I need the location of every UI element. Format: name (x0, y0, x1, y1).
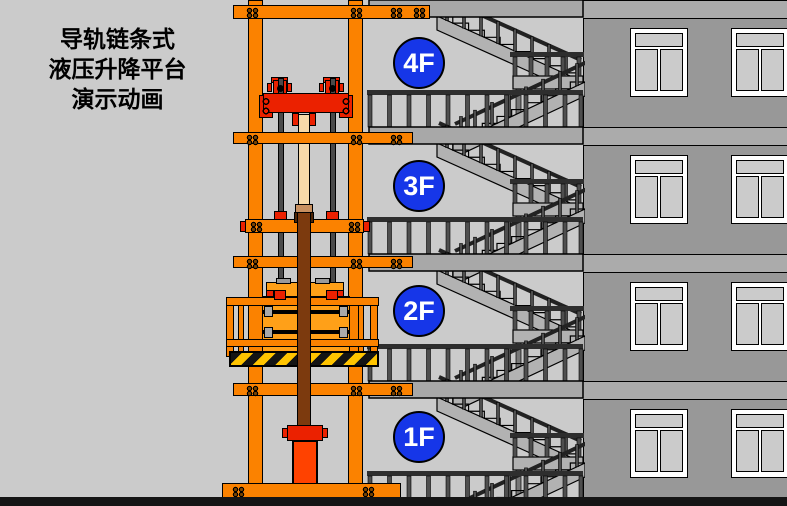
window-transom (736, 287, 784, 301)
lift-beam (233, 132, 413, 144)
bolt-group (250, 221, 263, 233)
bolt-group (246, 134, 259, 146)
bolt-group (413, 7, 426, 19)
bolt-group (390, 258, 403, 270)
floor-badge-label: 1F (403, 422, 435, 453)
rod-bracket (309, 113, 316, 126)
bolt-group (350, 385, 363, 397)
animation-stage: 4F 3F 2F 1F 导轨链条式 液压升降平台 演示动画 (0, 0, 787, 506)
cage-post (226, 297, 234, 357)
cage-post (370, 297, 378, 357)
floor-badge-1f: 1F (393, 411, 445, 463)
window-pane (761, 303, 784, 345)
sprocket-lug (319, 83, 324, 92)
bolt-group (246, 385, 259, 397)
crate-patch (264, 306, 273, 317)
bolt-group (390, 134, 403, 146)
rod-bracket (292, 113, 299, 126)
sprocket-lug (339, 83, 344, 92)
window-pane (635, 430, 658, 472)
lift-beam (233, 256, 413, 268)
hydraulic-rod (298, 114, 310, 214)
bolt-group (246, 7, 259, 19)
bolt-group (350, 258, 363, 270)
window-pane (660, 176, 683, 218)
window-pane (635, 176, 658, 218)
floor-badge-label: 4F (403, 48, 435, 79)
floor-band (583, 254, 787, 273)
window-pane (736, 176, 759, 218)
floor-badge-2f: 2F (393, 285, 445, 337)
cargo-lid-tab (276, 278, 291, 284)
title-line: 液压升降平台 (10, 54, 225, 84)
floor-band (583, 127, 787, 146)
window-pane (761, 49, 784, 91)
window-pane (736, 49, 759, 91)
hydraulic-cylinder (292, 440, 318, 485)
window-pane (660, 430, 683, 472)
window-pane (761, 430, 784, 472)
floor-badge-label: 2F (403, 296, 435, 327)
chain-anchor (274, 290, 286, 300)
sprocket-axle (329, 85, 336, 92)
window-pane (635, 303, 658, 345)
window (630, 155, 688, 224)
crate-patch (339, 306, 348, 317)
window (731, 28, 787, 97)
bolt-group (350, 7, 363, 19)
plate-bolts (341, 97, 351, 116)
floor-band (583, 381, 787, 400)
floor-badge-label: 3F (403, 171, 435, 202)
page-title: 导轨链条式 液压升降平台 演示动画 (10, 24, 225, 114)
title-line: 导轨链条式 (10, 24, 225, 54)
sprocket-lug (267, 83, 272, 92)
window-transom (736, 160, 784, 174)
cargo-lid-tab (315, 278, 330, 284)
lift-beam (233, 383, 413, 396)
window (630, 282, 688, 351)
bolt-group (390, 7, 403, 19)
crate-patch (264, 327, 273, 338)
window-transom (635, 287, 683, 301)
sprocket-axle (277, 85, 284, 92)
window-pane (736, 430, 759, 472)
cylinder-cap (287, 425, 323, 441)
window (731, 282, 787, 351)
window-pane (660, 303, 683, 345)
bolt-group (390, 385, 403, 397)
floor-badge-3f: 3F (393, 160, 445, 212)
window-pane (660, 49, 683, 91)
lift-mast (297, 212, 311, 428)
chain-anchor (326, 290, 338, 300)
window (731, 409, 787, 478)
carriage-beam (263, 93, 349, 113)
lift-column-right (348, 0, 363, 484)
bolt-group (246, 258, 259, 270)
window-pane (761, 176, 784, 218)
ground-bar (0, 497, 787, 506)
title-line: 演示动画 (10, 84, 225, 114)
lift-column-left (248, 0, 263, 484)
window (630, 409, 688, 478)
window-transom (736, 33, 784, 47)
bolt-group (350, 134, 363, 146)
window-transom (635, 33, 683, 47)
plate-bolts (261, 97, 271, 116)
floor-band (583, 0, 787, 19)
window (731, 155, 787, 224)
window-pane (635, 49, 658, 91)
crate-patch (339, 327, 348, 338)
window (630, 28, 688, 97)
window-transom (736, 414, 784, 428)
window-transom (635, 414, 683, 428)
window-pane (736, 303, 759, 345)
window-transom (635, 160, 683, 174)
bolt-group (348, 221, 361, 233)
floor-badge-4f: 4F (393, 37, 445, 89)
sprocket-lug (287, 83, 292, 92)
